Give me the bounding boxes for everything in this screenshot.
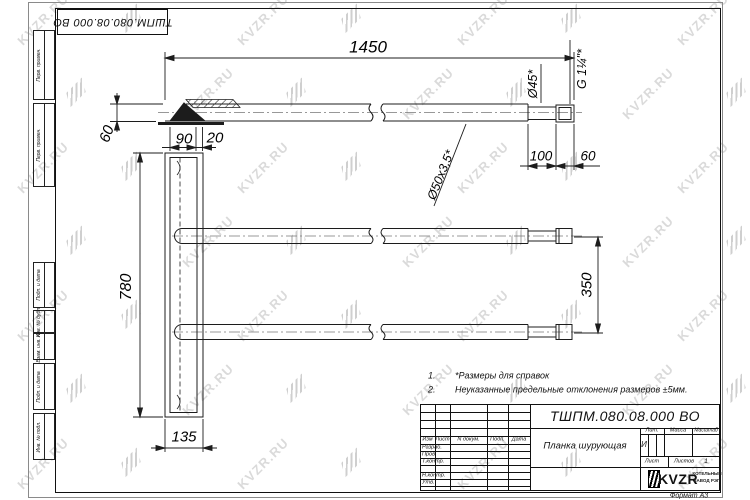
note-2-number: 2. (428, 386, 436, 395)
note-1-text: *Размеры для справок (455, 372, 549, 381)
title-part-name: Планка шурующая (543, 441, 626, 451)
margin-label: Перв. примен. (36, 48, 42, 81)
scale-header: Масштаб (694, 429, 717, 434)
margin-cell-podp-data-1: Подп. и дата (33, 262, 55, 308)
note-1-number: 1. (428, 372, 436, 381)
cell-divider (44, 364, 45, 409)
cell-divider (44, 414, 45, 459)
col-doc: N докум. (457, 437, 479, 443)
doc-number-stamp-text: ТШПМ.080.08.000 ВО (53, 16, 173, 28)
cell-divider (44, 31, 45, 99)
lit-header: Лит. (646, 428, 659, 434)
margin-label: Подп. и дата (36, 269, 42, 300)
cell-divider (44, 334, 45, 359)
top-view (158, 100, 582, 124)
margin-label: Подп. и дата (36, 371, 42, 402)
weld-hatch (186, 100, 240, 108)
cell-divider (44, 263, 45, 307)
margin-cell-perv-primen: Перв. примен. (33, 30, 55, 100)
row-tkontr: Т.контр. (422, 459, 444, 465)
dim-wedge-offset: 20 (207, 131, 224, 146)
brand-subtitle-2: ЗАВОД РЭП (694, 479, 721, 484)
dim-end-length: 100 (530, 149, 553, 163)
col-list: Лист (435, 437, 449, 443)
title-doc-number: ТШПМ.080.08.000 ВО (550, 409, 700, 423)
dim-end-diameter: Ø45* (527, 70, 540, 99)
col-data: Дата (512, 437, 527, 443)
col-podp: Подп. (490, 437, 505, 443)
sheet-label: Лист (645, 459, 659, 465)
dim-wedge-length: 90 (176, 132, 193, 147)
margin-label: Взам. инв. № (36, 331, 42, 362)
sheets-label: Листов (674, 459, 694, 465)
margin-cell-sprav: Перв. примен. (33, 103, 55, 187)
mass-header: Масса (670, 428, 686, 434)
format-label: Формат А3 (670, 492, 708, 499)
row-razrab: Разраб. (422, 445, 442, 451)
dim-thread-length: 60 (580, 149, 595, 163)
drawing-sheet: KVZR.RUKVZR.RUKVZR.RUKVZR.RUKVZR.RUKVZR.… (0, 0, 750, 500)
row-utv: Утв. (422, 480, 435, 486)
dim-plank-width: 135 (171, 430, 196, 445)
brand-subtitle-1: КОТЕЛЬНЫЙ (692, 472, 721, 477)
margin-label: Инв. № подл. (36, 421, 42, 452)
dim-pipe-spacing: 350 (580, 272, 595, 297)
dim-total-length: 1450 (349, 39, 387, 56)
dim-thread-spec: G 1¼"* (576, 49, 589, 89)
col-izm: Изм (422, 437, 432, 443)
row-nkontr: Н.контр. (422, 473, 445, 479)
margin-cell-vzam-inv: Взам. инв. № (33, 333, 55, 360)
margin-cell-inv-podl: Инв. № подл. (33, 413, 55, 460)
lit-value: И (641, 441, 647, 449)
cell-divider (44, 104, 45, 186)
margin-cell-inv-dubl: Инв. № дубл. (33, 310, 55, 333)
row-prov: Пров. (422, 452, 437, 458)
note-2-text: Неуказанные предельные отклонения размер… (455, 386, 687, 395)
margin-label: Перв. примен. (36, 128, 42, 161)
cell-divider (44, 311, 45, 332)
margin-cell-podp-data-2: Подп. и дата (33, 363, 55, 410)
doc-number-stamp: ТШПМ.080.08.000 ВО (57, 9, 168, 35)
dim-plank-height: 780 (119, 274, 135, 301)
sheets-value: 1 (704, 458, 708, 465)
